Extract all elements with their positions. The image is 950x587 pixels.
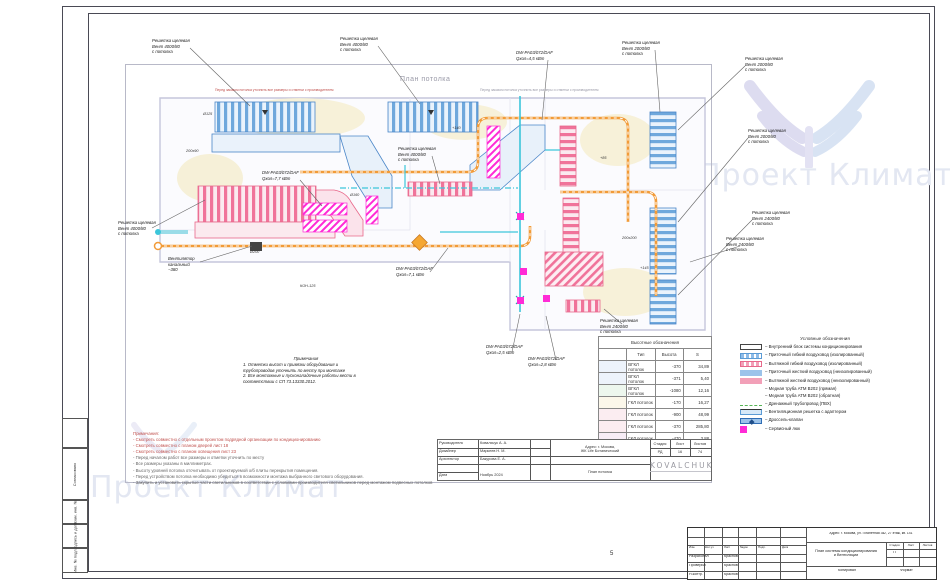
role-name: Маркеев Н. М. — [480, 449, 506, 453]
table-row: ВГКЛ потолок-108012,16 — [599, 385, 712, 397]
callout: DW-PA03/072/DAF Qхол=7,7 кВт — [262, 170, 299, 181]
list-item: – Внутренний блок системы кондиционирова… — [740, 344, 910, 350]
top-wall-note-gray: Перед заказом потолка уточнить все разме… — [480, 88, 598, 92]
dim-label: Ø125 — [203, 112, 212, 116]
callout: Решетка щелевая Вент 4000/80 с потолка — [152, 38, 190, 55]
service-hatch-icon — [740, 426, 747, 433]
replace-label: Взам. инв. № — [73, 500, 78, 524]
drawing-name: План системы кондиционирования и Вентиля… — [808, 549, 884, 557]
callout: Решетка щелевая Вент 2000/80 с потолка — [745, 56, 783, 73]
margin-box-grid — [62, 418, 88, 448]
role-label: Руководитель — [439, 441, 463, 445]
note-line: - Закупить и установить скрытые части св… — [133, 480, 468, 486]
red-notes-block: Примечания: - Смотреть совместно с отдел… — [133, 431, 468, 486]
dim-label: Ø160 — [350, 193, 359, 197]
agreed-label: Согласовано — [73, 462, 78, 485]
stamp-col: Изм. — [689, 546, 695, 549]
sheet-value: 16 — [670, 450, 690, 454]
dim-label: +145 — [640, 266, 649, 270]
margin-box-sign-date: Подпись и дата — [62, 524, 88, 548]
callout: DW-PA03/072/DAF Qхол=2,5 кВт — [486, 344, 523, 355]
stage-value: РД — [650, 450, 670, 454]
role-name: Бакурова Е. А. — [480, 457, 506, 461]
damper-icon — [740, 418, 762, 424]
dim-label: Ø200 — [250, 250, 259, 254]
project-address: Адрес: г. Москва, ЖК Life Ботанический — [550, 445, 650, 453]
sheet-label: Лист — [903, 544, 919, 547]
copy-label: Копировал — [838, 569, 856, 573]
callout: Решетка щелевая Вент 2400/80 с потолка — [600, 318, 638, 335]
grille-adapter-icon — [740, 409, 762, 415]
plan-drawing — [0, 0, 950, 587]
exhaust-rigid-duct-icon — [740, 378, 762, 384]
callout: DW-PA03/072/DAF Qхол=7,1 кВт — [396, 266, 433, 277]
table-row: ГКЛ потолок-370285,80 — [599, 421, 712, 433]
margin-box-inventory: Инв. № подл. — [62, 548, 88, 573]
legend-title: Условные обозначения — [740, 336, 910, 341]
table-row: ВГКЛ потолок-3715,40 — [599, 373, 712, 385]
role-name: Ноябрь 2024 — [480, 473, 503, 477]
notes-body: 1. Отметки высот и привязки оборудования… — [243, 362, 369, 385]
stamp-col: Лист — [724, 546, 730, 549]
list-item: – Сервисный люк — [740, 426, 910, 433]
role-label: Архитектор — [439, 457, 459, 461]
role-name: Краснов — [724, 555, 738, 559]
sheets-value: 74 — [690, 450, 710, 454]
callout: Решетка щелевая Вент 2400/80 с потолка — [752, 210, 790, 227]
sign-date-label: Подпись и дата — [73, 522, 78, 550]
stage-label: Стадия — [886, 544, 903, 547]
format-label: Формат — [900, 569, 913, 573]
designer-title-block: Руководитель Ковальчук А. А. Дизайнер Ма… — [437, 439, 712, 481]
object-address: Адрес: г. Москва, ул. Планетная 3к2, 27 … — [806, 532, 936, 536]
indoor-unit-icon — [740, 344, 762, 350]
schedule-col-type: Тип — [627, 349, 655, 361]
role-name: Краснов — [724, 573, 738, 577]
schedule-col-height: Высота — [655, 349, 683, 361]
sheet-label: Лист — [670, 442, 690, 446]
ceiling-schedule-table: Высотные обозначения Тип Высота S ВГКЛ п… — [598, 336, 712, 445]
dim-label: +140 — [452, 126, 461, 130]
list-item: – Медная труба АТМ В202 (обратная) — [740, 394, 910, 399]
callout: Решетка щелевая Вент 4000/80 с потолка — [398, 146, 436, 163]
drawing-name: План потолка — [550, 470, 650, 474]
dim-label: 200x90 — [186, 149, 198, 153]
stamp-col: Кол.уч — [705, 546, 714, 549]
margin-box-replace: Взам. инв. № — [62, 500, 88, 524]
schedule-col-swatch — [599, 349, 627, 361]
plan-title: План потолка — [400, 76, 450, 83]
exhaust-flex-duct-icon — [740, 361, 762, 367]
logo-subline — [650, 471, 711, 472]
top-wall-note-red: Перед заказом потолка уточнить все разме… — [215, 88, 333, 92]
schedule-col-area: S — [683, 349, 711, 361]
inventory-label: Инв. № подл. — [73, 548, 78, 572]
callout: Решетка щелевая Вент 2000/80 с потолка — [622, 40, 660, 57]
swatch — [599, 421, 627, 433]
dim-label: КОН-125 — [300, 284, 316, 288]
swatch — [599, 373, 627, 385]
role-name: Ковальчук А. А. — [480, 441, 507, 445]
role-label: Н.контр. — [689, 573, 703, 577]
sheets-label: Листов — [919, 544, 936, 547]
table-row: ВГКЛ потолок-37034,89 — [599, 361, 712, 373]
callout: DW-PA03/072/DAF Qхол=2,8 кВт — [528, 356, 565, 367]
supply-rigid-duct-icon — [740, 370, 762, 376]
page-number: 5 — [610, 551, 613, 557]
callout: Решетка щелевая Вент 2000/80 с потолка — [748, 128, 786, 145]
main-title-block: Изм. Кол.уч Лист №док. Подп. Дата Разраб… — [687, 527, 937, 580]
legend: Условные обозначения – Внутренний блок с… — [740, 336, 910, 436]
list-item: – Вытяжной гибкий воздуховод (изолирован… — [740, 361, 910, 367]
stamp-col: Дата — [782, 546, 788, 549]
table-row: ГКЛ потолок-17016,27 — [599, 397, 712, 409]
stamp-col: Подп. — [758, 546, 766, 549]
stage-value: П — [886, 551, 903, 555]
list-item: – Вытяжной жесткий воздуховод (неизолиро… — [740, 378, 910, 384]
role-name: Краснов — [724, 564, 738, 568]
drain-pipe-icon — [740, 405, 762, 406]
table-row: ГКЛ потолок-90048,99 — [599, 409, 712, 421]
list-item: – Дренажный трубопровод (ПВХ) — [740, 402, 910, 407]
dim-label: 200x200 — [622, 236, 637, 240]
margin-box-agreed: Согласовано — [62, 448, 88, 500]
schedule-title: Высотные обозначения — [599, 337, 712, 349]
swatch — [599, 409, 627, 421]
role-label: Проверил — [689, 564, 706, 568]
swatch — [599, 397, 627, 409]
stamp-col: №док. — [740, 546, 748, 549]
callout: Вентилятор канальный −380 — [168, 256, 195, 273]
supply-flex-duct-icon — [740, 353, 762, 359]
stage-label: Стадия — [650, 442, 670, 446]
dim-label: +85 — [600, 156, 606, 160]
swatch — [599, 385, 627, 397]
role-label: Дизайнер — [439, 449, 456, 453]
role-label: Разработал — [689, 555, 709, 559]
list-item: – Дроссель-клапан — [740, 418, 910, 424]
page: { "watermark": { "text": "Проект Климат"… — [0, 0, 950, 587]
callout: Решетка щелевая Вент 4000/80 с потолка — [340, 36, 378, 53]
callout: Решетка щелевая Вент 4000/80 с потолка — [118, 220, 156, 237]
sheets-label: Листов — [690, 442, 710, 446]
role-label: Дата — [439, 473, 447, 477]
notes-block: Примечания 1. Отметки высот и привязки о… — [243, 356, 369, 385]
list-item: – Медная труба АТМ В202 (прямая) — [740, 387, 910, 392]
kovalchuk-logo: KOVALCHUK — [650, 462, 711, 470]
callout: DW-PA03/072/DAF Qхол=4,5 кВт — [516, 50, 553, 61]
swatch — [599, 361, 627, 373]
list-item: – Вентиляционная решетка с адаптером — [740, 409, 910, 415]
callout: Решетка щелевая Вент 2400/80 с потолка — [726, 236, 764, 253]
list-item: – Приточный жесткий воздуховод (неизолир… — [740, 370, 910, 376]
list-item: – Приточный гибкий воздуховод (изолирова… — [740, 353, 910, 359]
